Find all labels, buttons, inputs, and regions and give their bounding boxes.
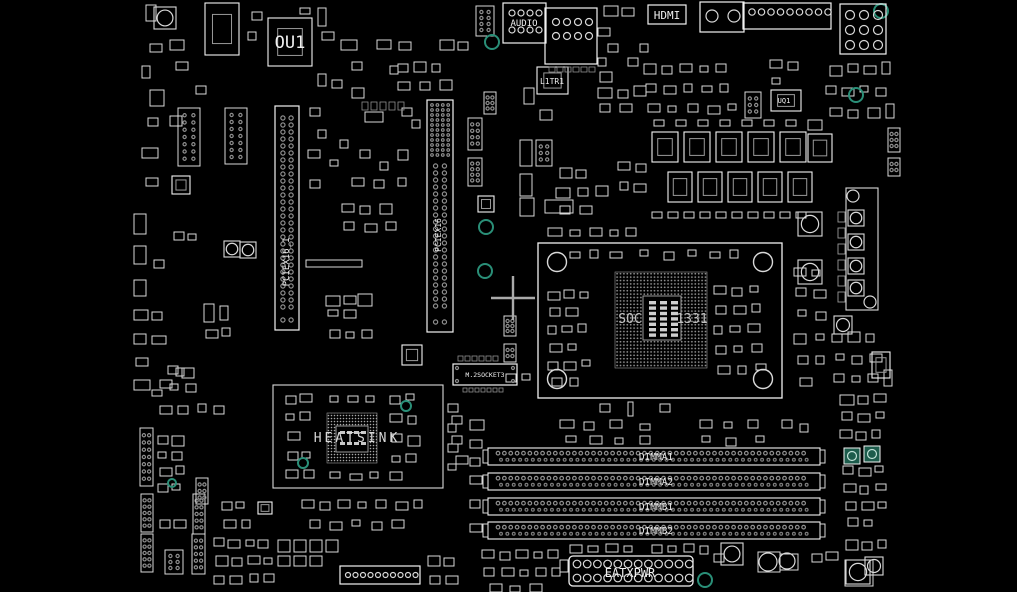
label-l1tr1: L1TR1 — [540, 77, 564, 86]
label-eatxpwr: EATXPWR — [605, 566, 656, 580]
socket-center-pad — [660, 333, 667, 336]
socket-center-pad — [660, 323, 667, 326]
socket-center-pad — [671, 306, 678, 309]
label-ou1: OU1 — [275, 33, 306, 53]
label-pciex16: PCIEX16 — [434, 218, 443, 252]
socket-center-pad — [660, 306, 667, 309]
socket-center-pad — [649, 312, 656, 315]
label-uq1: UQ1 — [778, 97, 791, 105]
socket-center-pad — [671, 328, 678, 331]
label-pciex16-1: PCIEX16_1 — [282, 238, 292, 287]
label-dimm-slot-1: DIMMA1 — [639, 452, 674, 463]
label-heatsink: HEATSINK — [314, 431, 401, 446]
board-canvas: OU1AUDIOHDMIL1TR1UQ1PCIEX16_1PCIEX16SOC1… — [0, 0, 1017, 592]
crystal-part — [864, 446, 880, 462]
socket-center-pad — [671, 333, 678, 336]
label-m-2socket3: M.2SOCKET3 — [465, 371, 504, 379]
label-1331: 1331 — [676, 312, 707, 327]
label-audio: AUDIO — [510, 19, 537, 29]
label-soc: SOC — [618, 312, 641, 327]
socket-center-pad — [649, 301, 656, 304]
socket-center-pad — [649, 306, 656, 309]
socket-center-pad — [649, 333, 656, 336]
socket-center-pad — [660, 312, 667, 315]
socket-center-pad — [649, 328, 656, 331]
label-dimm-slot-4: DIMMB2 — [639, 526, 673, 537]
pcb-boardview: OU1AUDIOHDMIL1TR1UQ1PCIEX16_1PCIEX16SOC1… — [0, 0, 1017, 592]
label-hdmi: HDMI — [654, 9, 681, 22]
label-dimm-slot-3: DIMMB1 — [639, 502, 674, 513]
socket-center-pad — [649, 323, 656, 326]
socket-center-pad — [660, 301, 667, 304]
socket-center-pad — [649, 317, 656, 320]
socket-center-pad — [671, 301, 678, 304]
socket-center-pad — [660, 317, 667, 320]
crystal-part — [844, 448, 860, 464]
socket-center-pad — [660, 328, 667, 331]
label-dimm-slot-2: DIMMA2 — [639, 477, 673, 488]
